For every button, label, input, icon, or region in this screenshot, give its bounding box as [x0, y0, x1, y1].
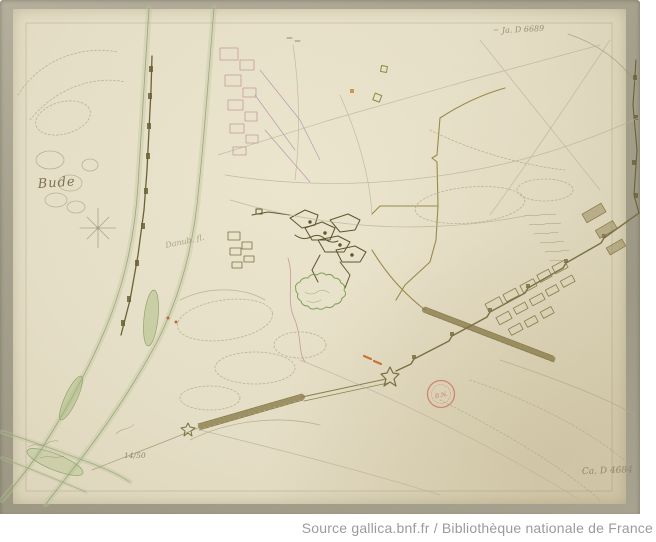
- roads: [200, 40, 638, 500]
- compass-rose-icon: [80, 208, 116, 248]
- shelfmark-top-right: Ja. D 6689: [500, 24, 545, 35]
- scanned-map-page: B.N. Bude Danub. fl. 14/50 Ja. D 6689 Ca…: [0, 0, 656, 542]
- pest-town-blocks: [220, 48, 320, 362]
- shelfmark-bottom-right: Ca. D 4684: [582, 465, 634, 477]
- wooded-garden: [296, 273, 346, 309]
- siege-trenches: [372, 88, 505, 310]
- riverbank-buildings: [228, 232, 254, 268]
- place-label-bude: Bude: [36, 174, 76, 192]
- library-stamp-icon: B.N.: [428, 381, 455, 408]
- river-label: Danub. fl.: [164, 233, 206, 250]
- danube-river: [2, 8, 214, 504]
- river-islands: [24, 289, 177, 480]
- gallica-caption-text: Source gallica.bnf.fr / Bibliothèque nat…: [302, 520, 656, 536]
- gallica-caption-bar: Source gallica.bnf.fr / Bibliothèque nat…: [0, 514, 656, 542]
- star-fort: [381, 367, 399, 386]
- pest-city-blocks: [485, 203, 626, 335]
- sheet-number: 14/50: [124, 451, 146, 460]
- stamp-text: B.N.: [433, 391, 448, 401]
- map-drawing: B.N. Bude Danub. fl. 14/50 Ja. D 6689 Ca…: [0, 0, 640, 516]
- field-marks: [350, 66, 387, 364]
